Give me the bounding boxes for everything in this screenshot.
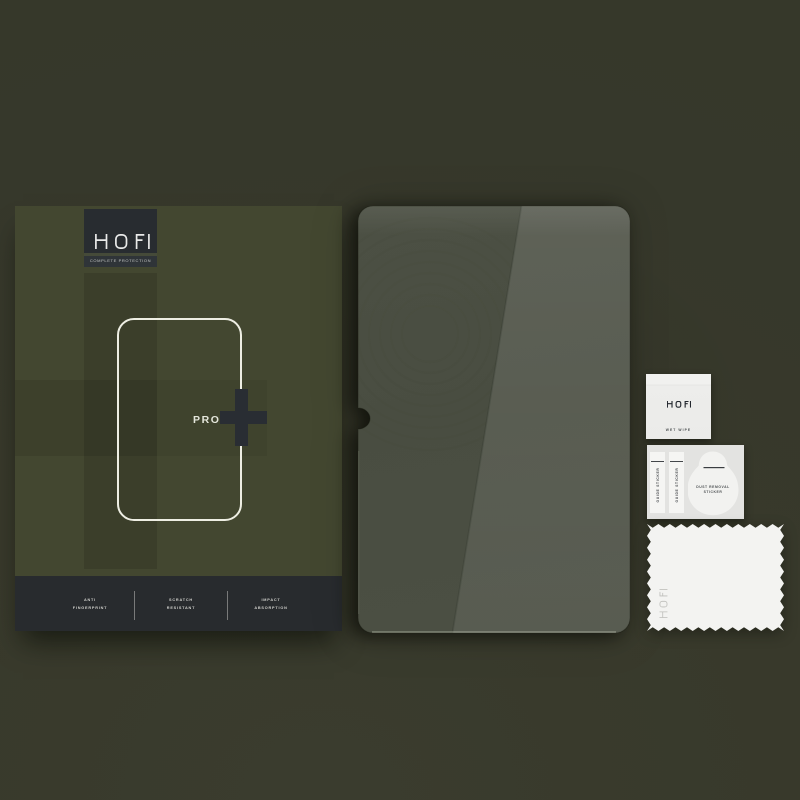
svg-text:STICKER: STICKER bbox=[704, 490, 723, 494]
svg-text:DUST REMOVAL: DUST REMOVAL bbox=[696, 485, 729, 489]
